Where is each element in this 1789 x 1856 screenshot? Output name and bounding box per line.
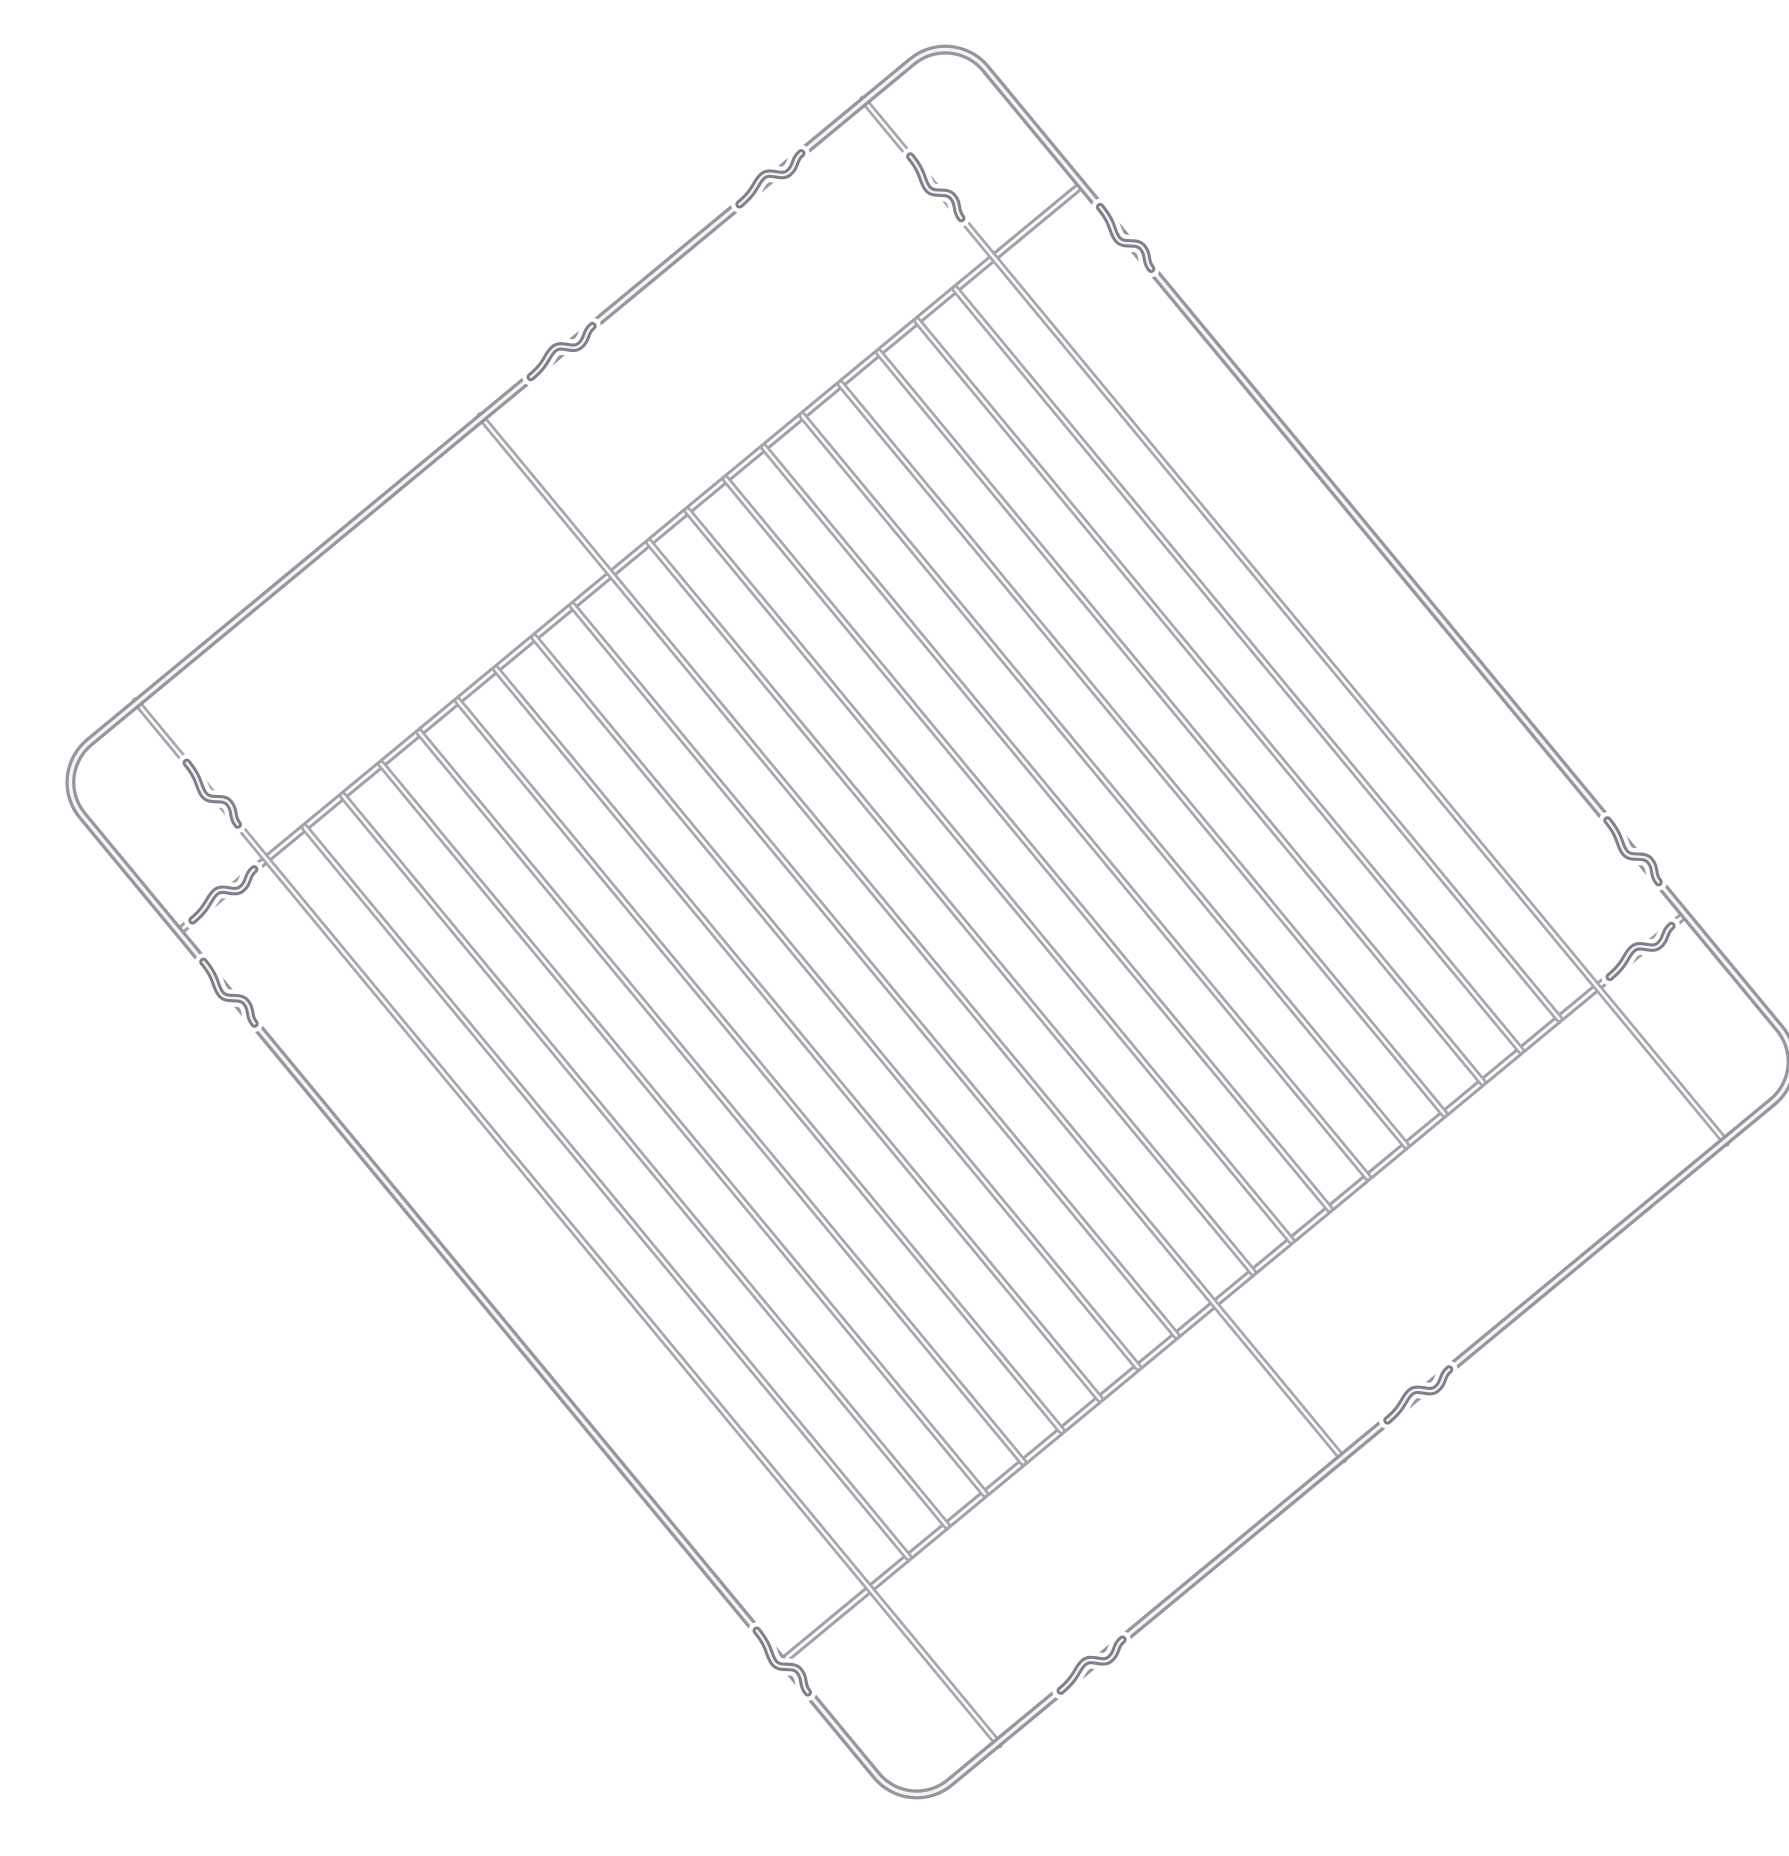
grid-wire-full-highlight <box>863 99 1726 1142</box>
oven-rack-photo <box>40 16 1789 1840</box>
grid-wire-highlight <box>764 447 1368 1177</box>
grid-wire-highlight <box>343 796 947 1526</box>
grid-wire-highlight <box>534 637 1138 1367</box>
grid-wire-highlight <box>726 479 1330 1209</box>
grid-wire-highlight <box>573 606 1177 1336</box>
grid-wire-highlight <box>841 384 1445 1114</box>
oven-rack <box>40 19 1789 1826</box>
rack-grid-wires <box>136 99 1726 1744</box>
grid-wire-highlight <box>879 352 1483 1082</box>
grid-wire-highlight <box>496 669 1100 1399</box>
grid-wire-highlight <box>649 543 1253 1273</box>
product-photo <box>40 16 1789 1840</box>
rack-cross-bars <box>179 185 1686 1662</box>
grid-wire-highlight <box>458 701 1062 1431</box>
grid-wire-highlight <box>420 733 1024 1463</box>
grid-wire-full-highlight <box>136 701 999 1744</box>
grid-wire-highlight <box>381 764 985 1494</box>
grid-wire-full-highlight <box>480 416 1343 1459</box>
grid-wire-highlight <box>688 511 1292 1241</box>
grid-wire-highlight <box>917 321 1521 1051</box>
grid-wire-highlight <box>802 416 1406 1146</box>
